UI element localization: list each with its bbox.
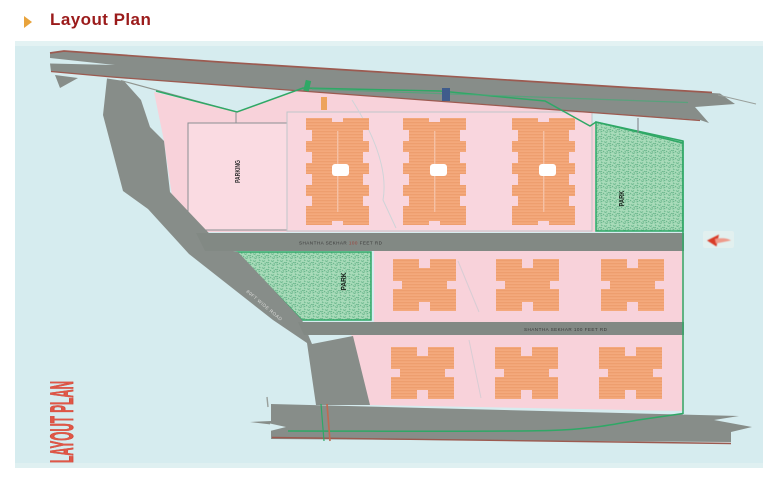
svg-text:SHANTHA SEKHAR 100 FEET RD: SHANTHA SEKHAR 100 FEET RD xyxy=(524,327,608,332)
svg-text:PARK: PARK xyxy=(341,273,348,291)
svg-text:LAYOUT PLAN: LAYOUT PLAN xyxy=(44,381,80,463)
svg-text:SHANTHA SEKHAR 100 FEET RD: SHANTHA SEKHAR 100 FEET RD xyxy=(299,241,383,246)
svg-text:PARK: PARK xyxy=(619,191,626,207)
svg-text:PARKING: PARKING xyxy=(235,160,242,183)
